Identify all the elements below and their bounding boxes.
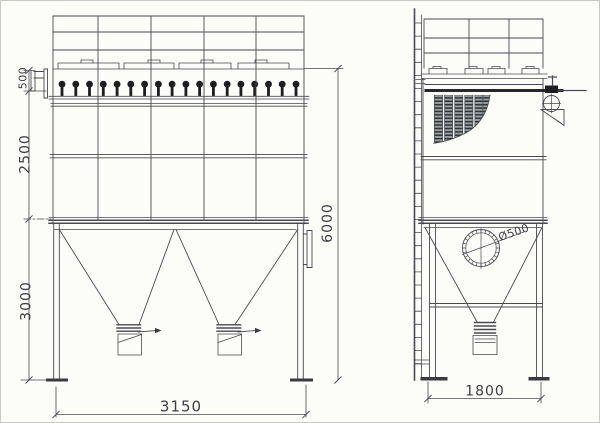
support-gusset [541,110,564,126]
pulse-tank-cross [543,94,561,113]
dim-1800: 1800 [425,382,544,403]
discharge-arrowhead-2 [255,328,262,333]
cross-brace [430,304,543,308]
left-inlet-fitting [31,69,48,98]
tube-sheet-bands [49,96,309,106]
drawing-sheet: 500 2500 3000 6000 3150 1800 Ø500 [0,0,600,423]
discharge-unit-1 [117,325,162,355]
discharge-unit-side [473,323,497,355]
dim-label-2500: 2500 [17,134,33,174]
top-guardrail-grid-side [424,19,543,68]
pulse-valve-fitting [545,86,558,94]
side-view [414,9,586,381]
dim-6000: 6000 [304,65,343,383]
pulse-valve-row [59,81,300,96]
dim-label-6000: 6000 [320,203,336,243]
twin-hoppers [59,230,297,325]
bag-filter-technical-drawing: 500 2500 3000 6000 3150 1800 Ø500 [1,1,600,423]
hopper-side [425,228,542,323]
base-plate-side-right [529,377,550,381]
base-plate-right [290,379,313,382]
valve-cover-row [53,60,304,69]
dim-label-3000: 3000 [18,281,34,321]
base-plate-side-left [421,377,448,381]
dim-chain-left: 500 2500 3000 [16,67,51,383]
hopper-top-band-side [419,220,547,223]
dim-label-inlet-diameter: Ø500 [497,221,531,244]
roof-and-covers-side [422,67,547,79]
dim-label-1800: 1800 [465,384,505,400]
front-view [31,16,313,382]
discharge-unit-2 [217,325,262,355]
dim-label-500: 500 [16,67,29,90]
dim-3150: 3150 [53,385,309,418]
filter-bags-cutaway [434,95,490,145]
support-legs-side [430,224,543,377]
support-legs-front [54,224,304,379]
hopper-top-band [49,220,308,223]
top-guardrail-grid [53,16,304,69]
outlet-duct-flange [304,231,312,268]
discharge-arrowhead-1 [155,328,162,333]
dim-label-3150: 3150 [160,398,202,416]
ladder-rungs [415,23,422,364]
